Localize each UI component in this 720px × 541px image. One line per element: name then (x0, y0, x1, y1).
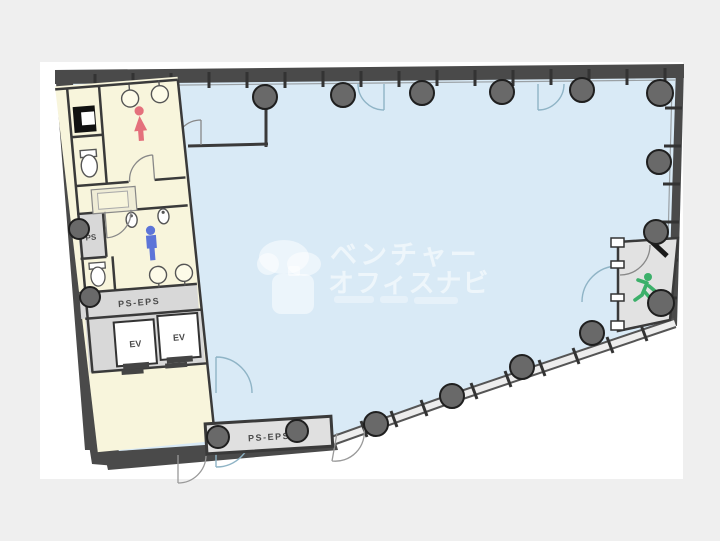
column (580, 321, 604, 345)
slop-sink-icon (73, 105, 97, 133)
watermark-line1: ベンチャー (330, 240, 480, 270)
column (440, 384, 464, 408)
column (286, 420, 308, 442)
sink-icon (151, 85, 169, 103)
column (69, 219, 89, 239)
sink-icon (121, 89, 139, 107)
vestibule (91, 186, 137, 213)
column (410, 81, 434, 105)
column (647, 150, 671, 174)
elevator-2-label: EV (173, 332, 186, 343)
column (510, 355, 534, 379)
column (207, 426, 229, 448)
elevator-1: EV (114, 319, 158, 370)
toilet-icon (80, 149, 98, 177)
column (644, 220, 668, 244)
watermark-tagline-bar (334, 296, 458, 304)
floor-plan-page: PS PS-EPS EV (0, 0, 720, 541)
column (364, 412, 388, 436)
column (253, 85, 277, 109)
column (647, 80, 673, 106)
sink-icon (175, 264, 193, 282)
floor-plan-svg: PS PS-EPS EV (0, 0, 720, 541)
sink-icon (149, 266, 167, 284)
column (80, 287, 100, 307)
watermark-line2: オフィスナビ (328, 268, 489, 298)
column (570, 78, 594, 102)
column (648, 290, 674, 316)
elevator-2: EV (157, 313, 201, 364)
elevator-1-label: EV (129, 338, 142, 349)
counter-top (97, 191, 128, 209)
column (490, 80, 514, 104)
column (331, 83, 355, 107)
